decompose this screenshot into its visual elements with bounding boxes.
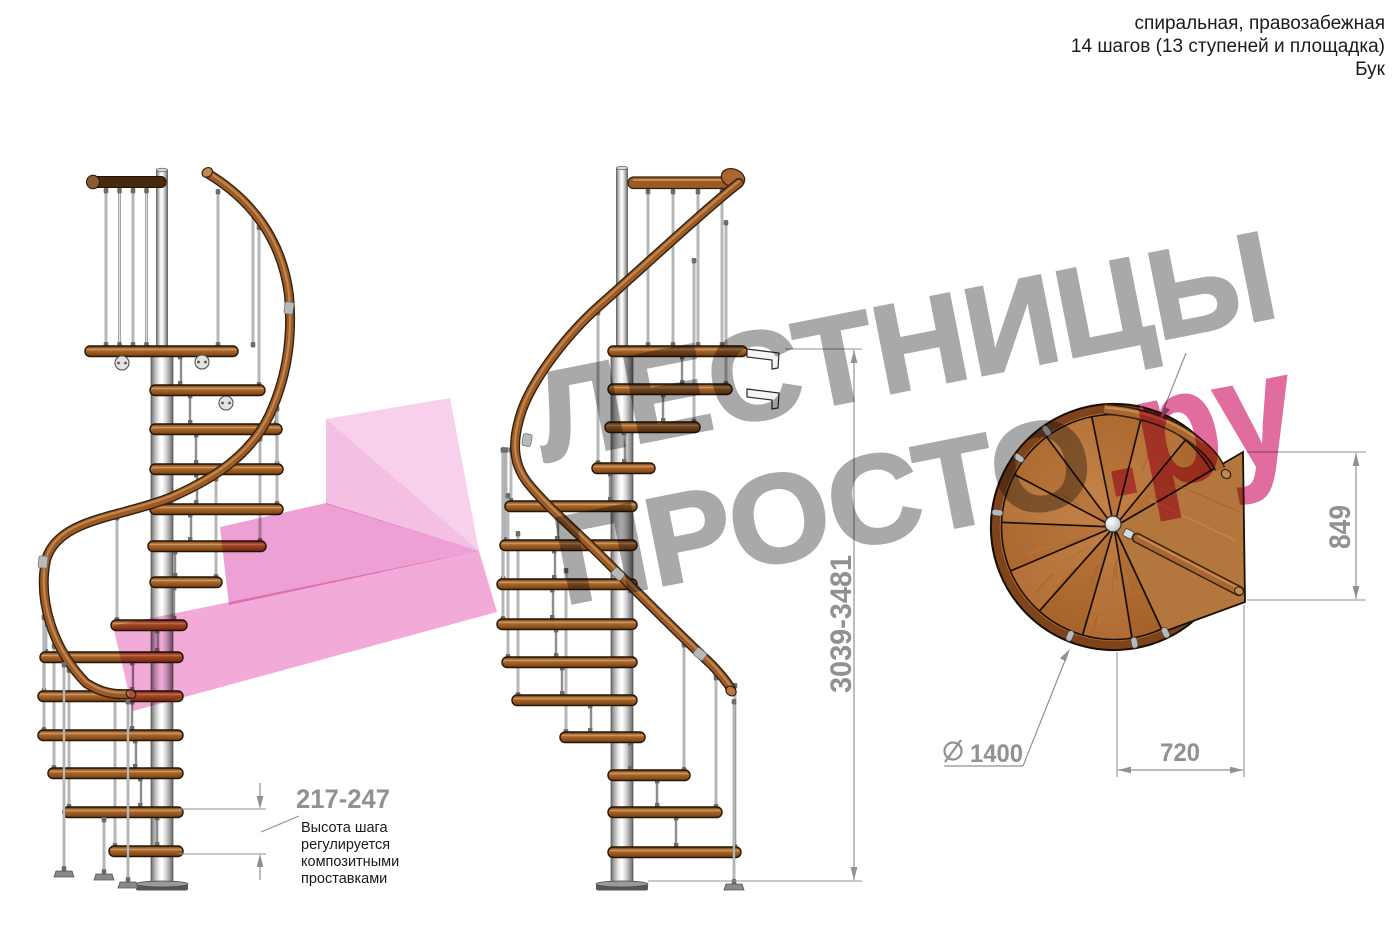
svg-text:спиральная, правозабежная: спиральная, правозабежная <box>1135 13 1385 34</box>
svg-text:.ру: .ру <box>1079 316 1310 530</box>
svg-text:14 шагов (13 ступеней и площад: 14 шагов (13 ступеней и площадка) <box>1071 36 1385 57</box>
svg-text:720: 720 <box>1160 739 1200 767</box>
svg-text:1400: 1400 <box>970 740 1023 768</box>
svg-text:217-247: 217-247 <box>296 784 390 814</box>
svg-text:Бук: Бук <box>1355 59 1386 80</box>
svg-text:Высота шагарегулируетсякомпози: Высота шагарегулируетсякомпозитнымипрост… <box>301 820 399 887</box>
svg-text:849: 849 <box>1324 505 1357 549</box>
